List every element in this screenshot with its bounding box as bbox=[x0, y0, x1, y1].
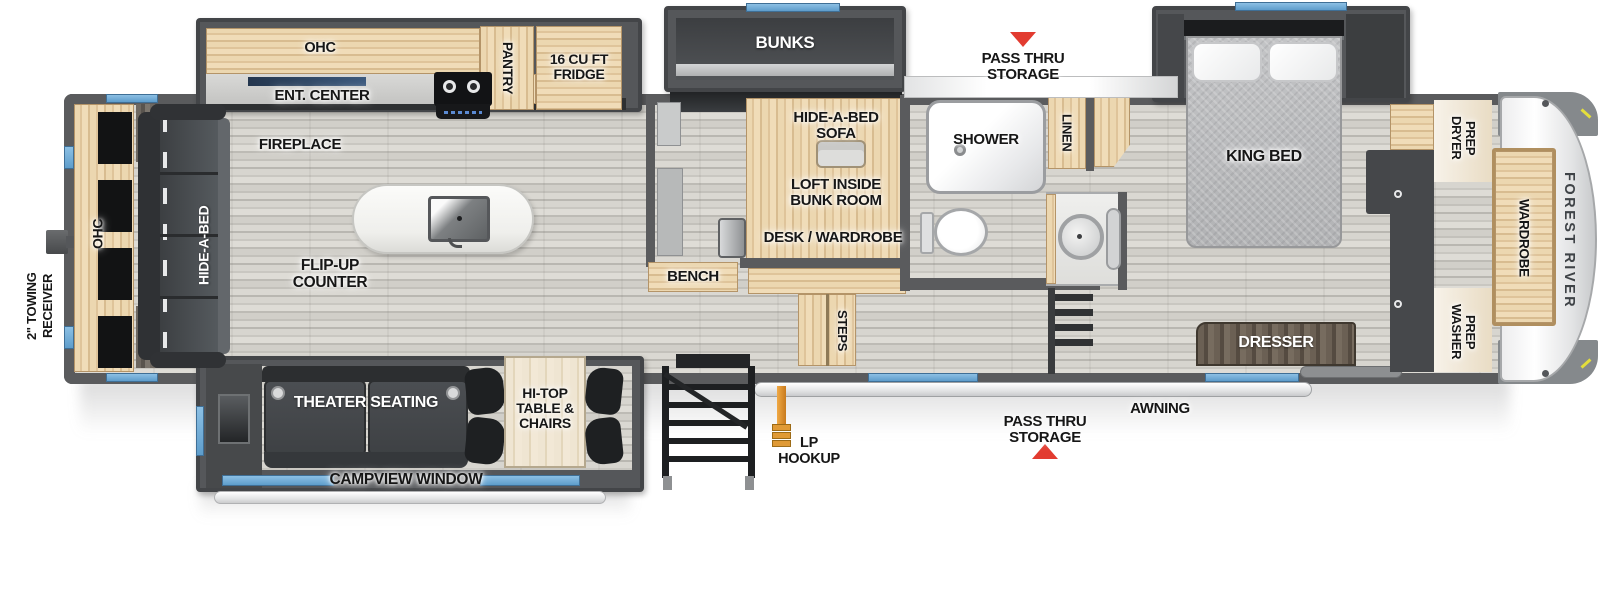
sofa-armrest-top bbox=[150, 104, 226, 120]
hide-a-bed-sofa-back bbox=[138, 112, 162, 360]
flip-up-counter-label: FLIP-UP COUNTER bbox=[275, 258, 385, 291]
tv-strip bbox=[248, 77, 366, 86]
vanity-side-basin bbox=[1106, 208, 1121, 270]
cabinet-handle bbox=[1394, 190, 1402, 198]
entry-landing bbox=[676, 354, 750, 368]
rear-ohc-opening bbox=[98, 316, 132, 368]
bench-label: BENCH bbox=[650, 269, 736, 285]
washer-prep-label: WASHER PREP bbox=[1438, 298, 1488, 366]
loft-sofa bbox=[816, 140, 866, 168]
loft-label: LOFT INSIDE BUNK ROOM bbox=[778, 177, 894, 209]
lp-hookup-coupling bbox=[772, 424, 791, 431]
awning-bar bbox=[754, 382, 1312, 397]
entry-steps-foot bbox=[663, 476, 672, 490]
vanity-wood-edge bbox=[1046, 194, 1056, 284]
vanity-sink-drain bbox=[1077, 234, 1082, 239]
lp-hookup-pipe bbox=[777, 386, 786, 426]
slideout-skid-bar bbox=[214, 491, 606, 504]
entry-step bbox=[666, 456, 751, 462]
brand-label: FOREST RIVER bbox=[1556, 146, 1580, 336]
hi-top-label: HI-TOP TABLE & CHAIRS bbox=[504, 386, 586, 431]
fireplace-label: FIREPLACE bbox=[240, 137, 360, 153]
sofa-front-edge bbox=[218, 118, 230, 354]
steps-label: STEPS bbox=[832, 300, 852, 362]
bedroom-front-corridor bbox=[1434, 182, 1492, 288]
dresser-label: DRESSER bbox=[1206, 334, 1346, 351]
bedroom-steps-rail bbox=[1048, 288, 1055, 374]
arrow-down-icon bbox=[1010, 32, 1036, 47]
cabinet-handle bbox=[1394, 300, 1402, 308]
bedroom-step bbox=[1055, 324, 1093, 331]
window-rear-top bbox=[106, 94, 158, 103]
utility-door bbox=[1300, 366, 1402, 378]
towing-hitch-tab bbox=[66, 236, 74, 248]
fridge-label: 16 CU FT FRIDGE bbox=[533, 52, 625, 82]
desk-wardrobe-label: DESK / WARDROBE bbox=[760, 230, 906, 246]
entry-step bbox=[666, 438, 751, 444]
rear-ohc-opening bbox=[98, 112, 132, 164]
ent-center-label: ENT. CENTER bbox=[247, 88, 397, 104]
window-bottom-mid bbox=[868, 373, 978, 382]
shower-label: SHOWER bbox=[932, 132, 1040, 148]
window-campview-left bbox=[222, 475, 334, 486]
desk-chair bbox=[718, 218, 746, 258]
towing-receiver-label: 2" TOWING RECEIVER bbox=[18, 258, 62, 354]
steps-divider bbox=[826, 294, 829, 366]
pass-thru-top-label: PASS THRU STORAGE bbox=[961, 51, 1085, 83]
sofa-cushion-line bbox=[160, 172, 218, 175]
cap-rivet-bottom bbox=[1542, 370, 1549, 377]
awning-label: AWNING bbox=[1108, 401, 1212, 417]
toilet-bowl bbox=[934, 208, 988, 256]
bedroom-right-cabinet bbox=[1346, 14, 1404, 98]
window-bottom-bedroom bbox=[1205, 373, 1299, 382]
slideout-end-window bbox=[218, 394, 250, 444]
theater-sofa-front bbox=[264, 452, 468, 468]
bedroom-step bbox=[1055, 294, 1093, 301]
bunkroom-bottom-wall bbox=[740, 258, 906, 268]
theater-seating-label: THEATER SEATING bbox=[282, 394, 450, 411]
bathroom-right-wall-upper bbox=[1086, 95, 1094, 171]
range-hood-lights bbox=[444, 111, 482, 114]
bunks-label: BUNKS bbox=[742, 34, 828, 52]
sofa-armrest-bottom bbox=[150, 352, 226, 368]
window-campview-right bbox=[480, 475, 580, 486]
cap-rivet-top bbox=[1542, 100, 1549, 107]
campview-window-label: CAMPVIEW WINDOW bbox=[320, 472, 492, 489]
dinette-chair bbox=[584, 366, 625, 416]
window-rear-left-1 bbox=[64, 146, 74, 169]
bedroom-step bbox=[1055, 339, 1093, 346]
towing-hitch-icon bbox=[46, 230, 68, 254]
bunks-ledge bbox=[676, 64, 894, 76]
hide-a-bed-sofa-label: HIDE-A-BED SOFA bbox=[780, 110, 892, 142]
dinette-chair bbox=[584, 416, 625, 466]
linen-label: LINEN bbox=[1056, 102, 1077, 164]
wardrobe-label: WARDROBE bbox=[1512, 176, 1534, 300]
bedroom-step bbox=[1055, 309, 1093, 316]
hide-a-bed-label: HIDE-A-BED bbox=[192, 186, 216, 304]
pillow bbox=[1192, 42, 1262, 82]
lp-hookup-label: LP HOOKUP bbox=[778, 436, 840, 467]
bunkroom-left-wall bbox=[646, 95, 655, 267]
burner bbox=[467, 80, 480, 93]
headboard-tv-shelf bbox=[1184, 20, 1344, 36]
bathroom-left-wall bbox=[900, 95, 910, 291]
pass-thru-bottom-label: PASS THRU STORAGE bbox=[983, 414, 1107, 446]
bunkroom-door bbox=[657, 102, 681, 146]
sink-drain bbox=[457, 216, 462, 221]
bunkroom-door bbox=[657, 168, 683, 256]
entry-steps-foot bbox=[745, 476, 754, 490]
burner bbox=[443, 80, 456, 93]
pantry-label: PANTRY bbox=[496, 30, 517, 106]
kitchen-ohc-label: OHC bbox=[295, 41, 345, 57]
rv-floorplan: FOREST RIVER OHC HIDE-A-BED FIREPLACE FL… bbox=[0, 0, 1600, 591]
desk-front bbox=[748, 268, 906, 294]
window-rear-left-2 bbox=[64, 326, 74, 349]
window-bedroom bbox=[1235, 2, 1347, 11]
pillow bbox=[1268, 42, 1338, 82]
window-rear-bottom bbox=[106, 373, 158, 382]
window-slideout-left bbox=[196, 406, 204, 456]
toilet-tank bbox=[920, 212, 934, 254]
window-bunks bbox=[746, 3, 840, 12]
rear-ohc-label: OHC bbox=[86, 207, 110, 261]
dryer-prep-label: DRYER PREP bbox=[1438, 106, 1488, 170]
front-cabinet-shelf bbox=[1390, 104, 1434, 150]
dinette-chair bbox=[464, 366, 507, 416]
king-bed-label: KING BED bbox=[1212, 148, 1316, 165]
